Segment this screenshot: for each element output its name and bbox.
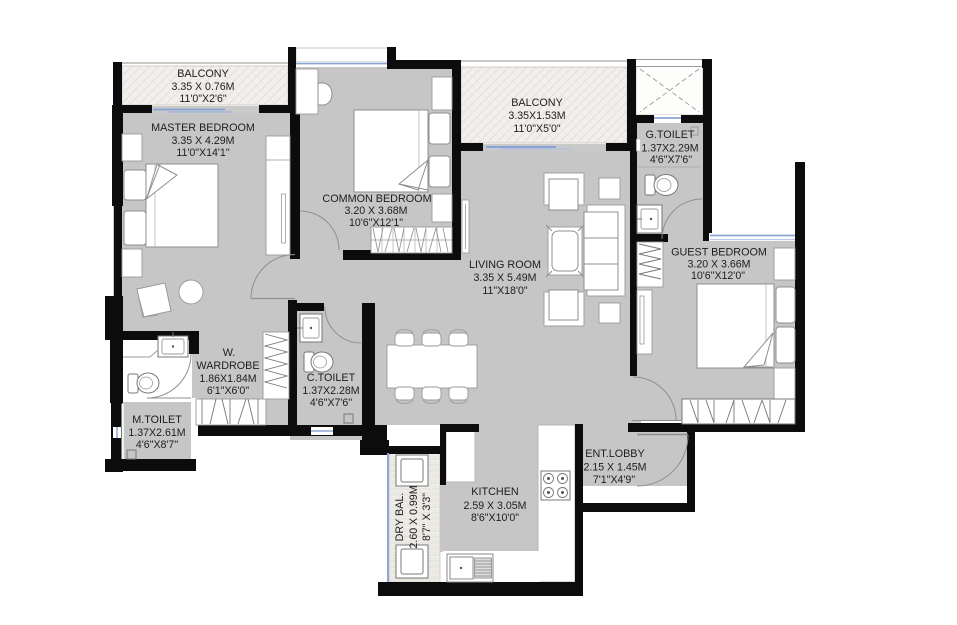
svg-text:2.15 X 1.45M: 2.15 X 1.45M	[583, 462, 646, 474]
svg-text:10'6"X12'0": 10'6"X12'0"	[691, 270, 745, 282]
svg-text:1.37X2.29M: 1.37X2.29M	[641, 143, 698, 155]
svg-text:3.35X1.53M: 3.35X1.53M	[508, 110, 565, 122]
svg-text:WARDROBE: WARDROBE	[196, 360, 259, 372]
svg-text:G.TOILET: G.TOILET	[646, 129, 695, 141]
svg-text:4'6"X8'7": 4'6"X8'7"	[136, 439, 178, 451]
svg-text:2.59 X 3.05M: 2.59 X 3.05M	[463, 500, 526, 512]
svg-text:1.37X2.28M: 1.37X2.28M	[302, 385, 359, 397]
svg-text:M.TOILET: M.TOILET	[132, 414, 182, 426]
svg-text:8'6"X10'0": 8'6"X10'0"	[471, 512, 519, 524]
svg-text:DRY BAL.: DRY BAL.	[394, 493, 406, 542]
svg-text:ENT.LOBBY: ENT.LOBBY	[585, 448, 644, 460]
svg-text:C.TOILET: C.TOILET	[307, 372, 356, 384]
svg-text:LIVING ROOM: LIVING ROOM	[469, 259, 541, 271]
svg-text:4'6"X7'6": 4'6"X7'6"	[310, 397, 352, 409]
svg-text:3.35 X 0.76M: 3.35 X 0.76M	[171, 81, 234, 93]
svg-text:6'1"X6'0": 6'1"X6'0"	[207, 385, 249, 397]
svg-text:3.20 X 3.66M: 3.20 X 3.66M	[687, 259, 750, 271]
svg-text:1.37X2.61M: 1.37X2.61M	[128, 427, 185, 439]
svg-text:3.35 X 4.29M: 3.35 X 4.29M	[171, 135, 234, 147]
svg-text:COMMON BEDROOM: COMMON BEDROOM	[322, 193, 431, 205]
svg-text:10'6"X12'1": 10'6"X12'1"	[349, 217, 403, 229]
svg-text:BALCONY: BALCONY	[177, 68, 229, 80]
svg-text:MASTER BEDROOM: MASTER BEDROOM	[151, 122, 255, 134]
svg-text:3.35 X 5.49M: 3.35 X 5.49M	[473, 272, 536, 284]
svg-text:GUEST BEDROOM: GUEST BEDROOM	[671, 247, 767, 259]
svg-text:KITCHEN: KITCHEN	[471, 486, 518, 498]
svg-text:1.86X1.84M: 1.86X1.84M	[199, 373, 256, 385]
svg-text:BALCONY: BALCONY	[511, 97, 563, 109]
svg-text:3.20 X 3.68M: 3.20 X 3.68M	[344, 205, 407, 217]
svg-text:11'0"X14'1": 11'0"X14'1"	[176, 147, 229, 159]
svg-text:8'7" X 3'3": 8'7" X 3'3"	[421, 493, 433, 541]
svg-text:11"X18'0": 11"X18'0"	[482, 285, 528, 297]
svg-text:4'6"X7'6": 4'6"X7'6"	[650, 154, 692, 166]
svg-text:W.: W.	[223, 347, 236, 359]
svg-text:11'0"X5'0": 11'0"X5'0"	[513, 123, 561, 135]
svg-text:2.60 X 0.99M: 2.60 X 0.99M	[408, 485, 420, 548]
svg-text:7'1"X4'9": 7'1"X4'9"	[593, 474, 635, 486]
svg-text:11'0"X2'6": 11'0"X2'6"	[179, 93, 227, 105]
